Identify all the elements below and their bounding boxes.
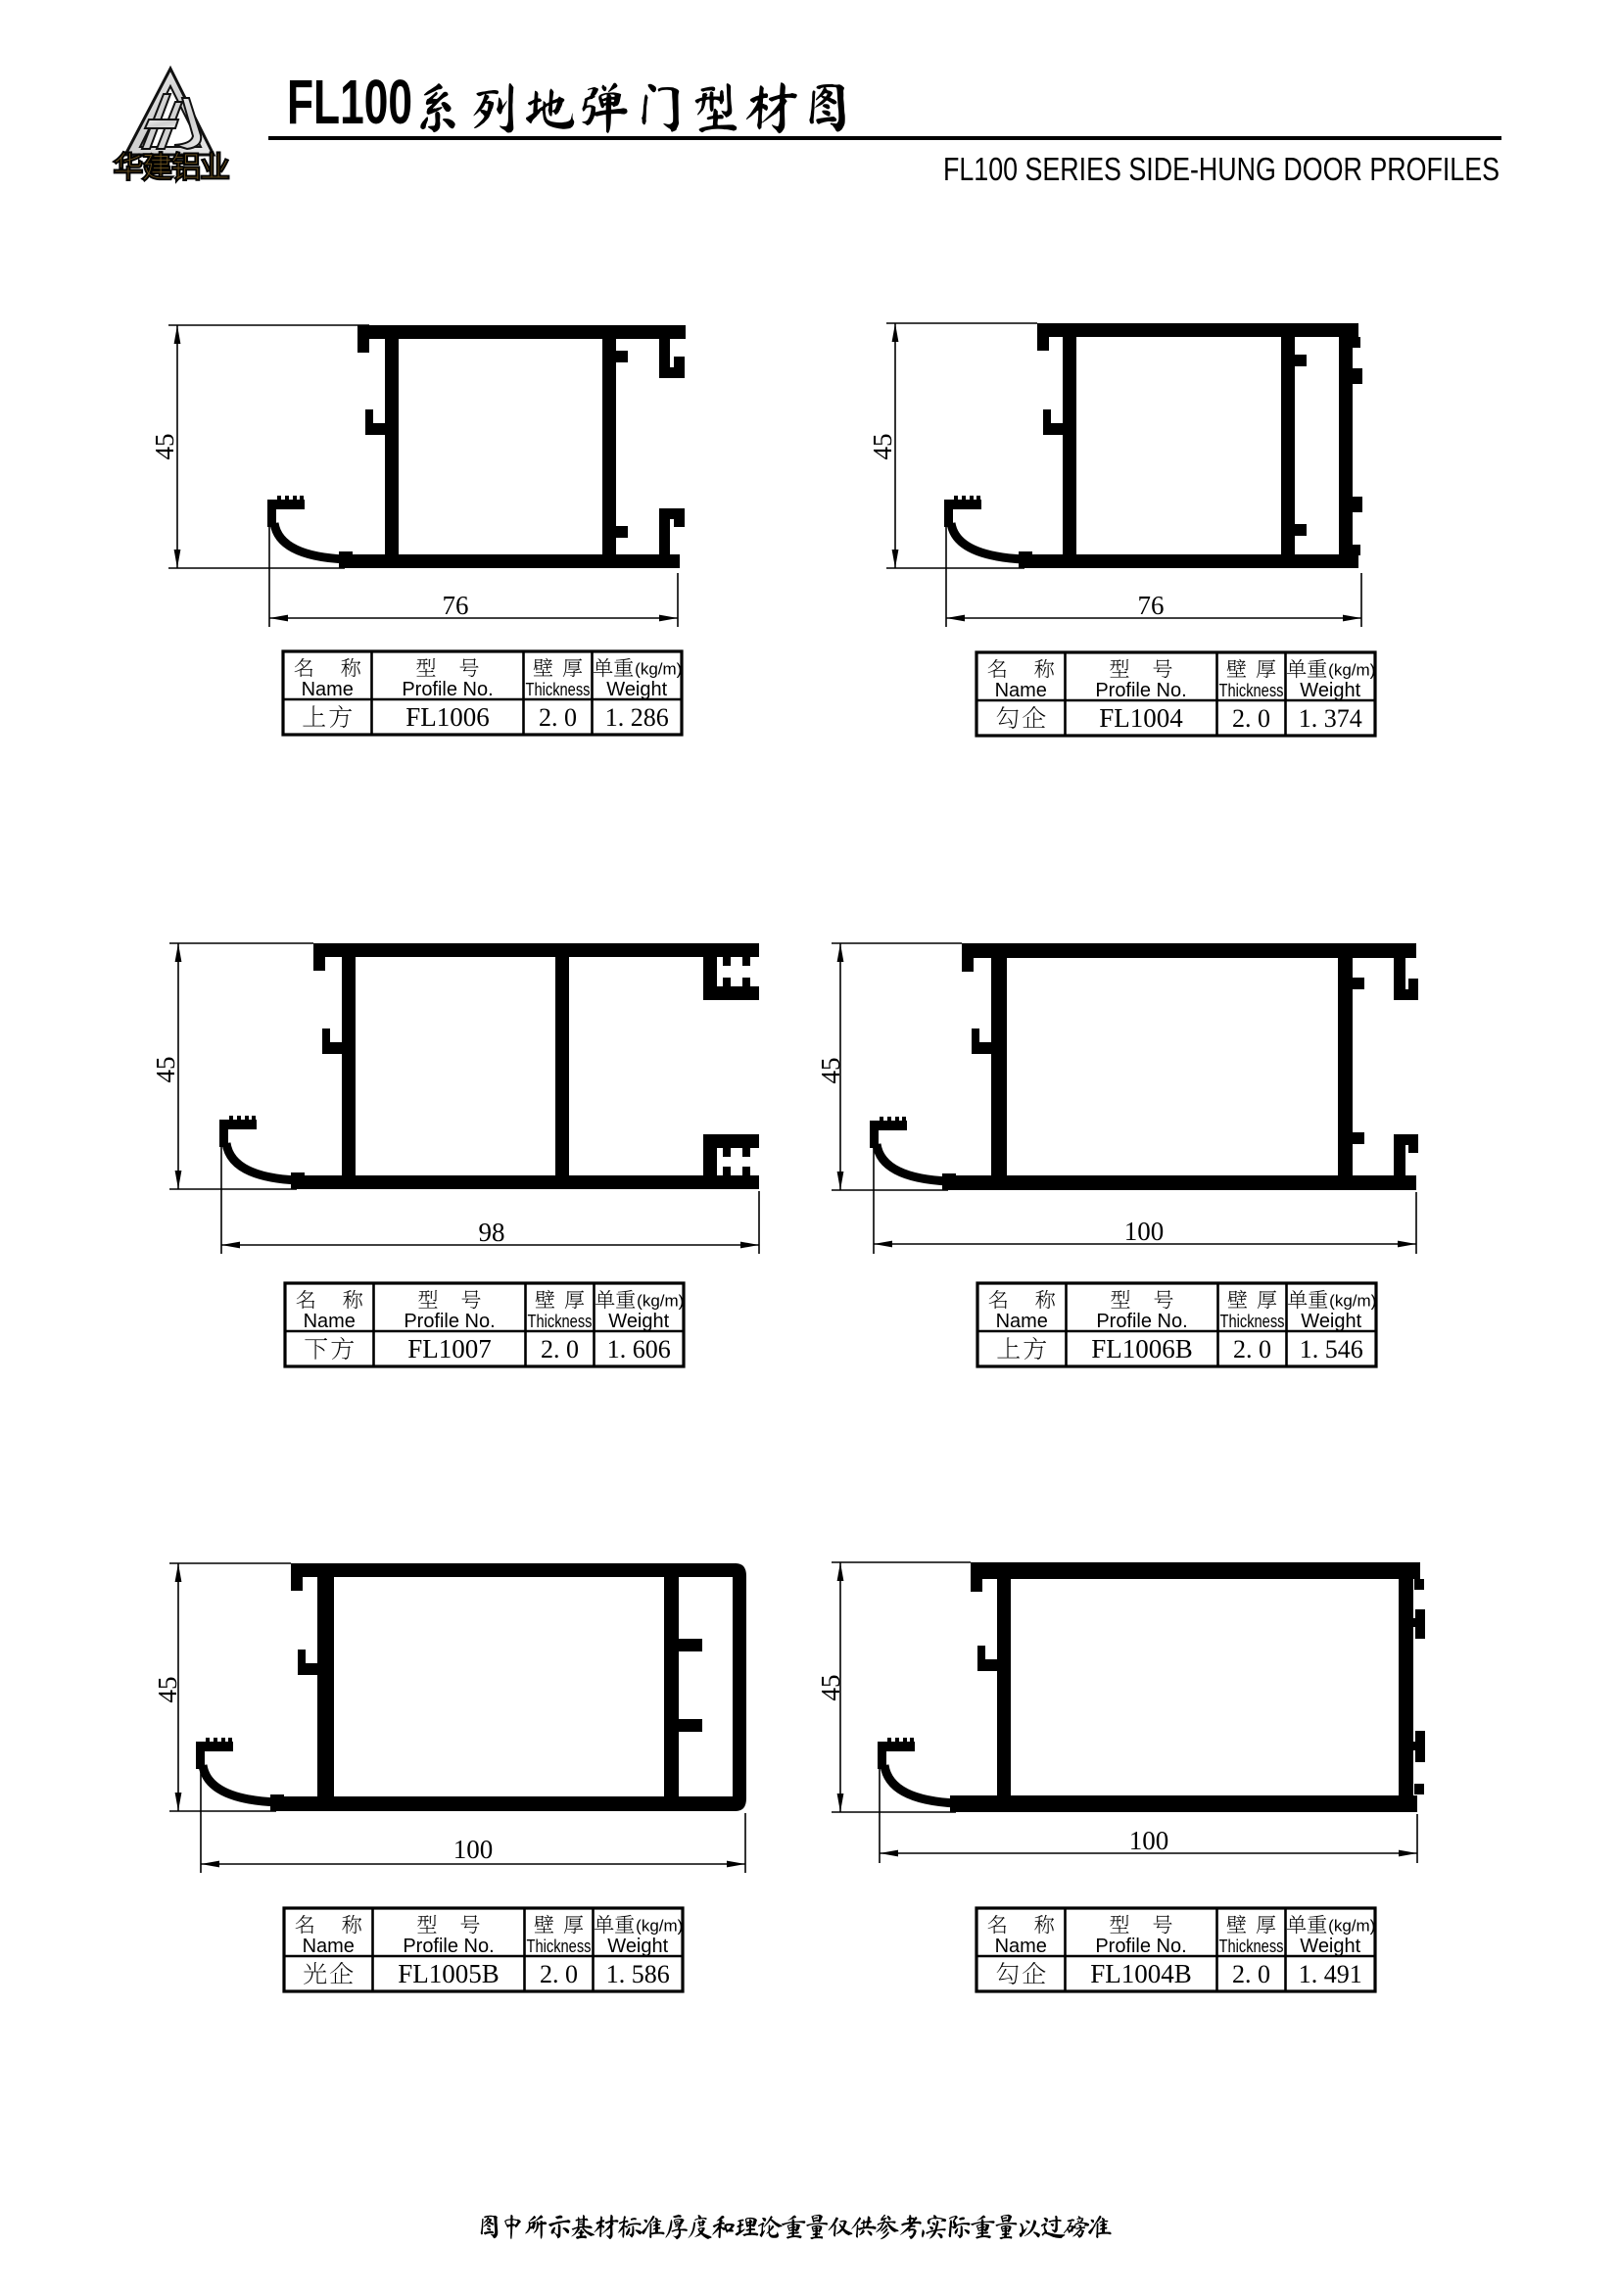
svg-text:FL1006: FL1006 [405, 702, 490, 732]
svg-text:Thickness: Thickness [526, 680, 591, 699]
svg-text:Thickness: Thickness [1220, 1312, 1285, 1331]
svg-text:45: 45 [153, 1677, 182, 1703]
svg-text:Profile No.: Profile No. [404, 1311, 495, 1332]
svg-text:2. 0: 2. 0 [541, 1335, 579, 1363]
svg-text:1. 374: 1. 374 [1299, 704, 1362, 733]
svg-text:Weight: Weight [607, 1936, 668, 1957]
svg-text:45: 45 [868, 434, 897, 460]
svg-text:2. 0: 2. 0 [539, 703, 577, 732]
svg-text:1. 491: 1. 491 [1299, 1960, 1362, 1988]
svg-text:FL100 SERIES SIDE-HUNG DOOR PR: FL100 SERIES SIDE-HUNG DOOR PROFILES [943, 151, 1500, 187]
svg-text:Thickness: Thickness [528, 1312, 593, 1331]
svg-text:(kg/m): (kg/m) [637, 1292, 684, 1311]
svg-text:(kg/m): (kg/m) [635, 660, 682, 679]
svg-text:FL1006B: FL1006B [1091, 1334, 1193, 1363]
svg-text:76: 76 [443, 591, 469, 620]
svg-text:45: 45 [151, 1057, 180, 1083]
svg-text:1. 546: 1. 546 [1300, 1335, 1363, 1363]
svg-text:Name: Name [304, 1311, 356, 1332]
svg-text:100: 100 [1129, 1826, 1169, 1855]
svg-text:45: 45 [816, 1058, 845, 1084]
svg-text:(kg/m): (kg/m) [636, 1917, 683, 1936]
svg-text:Thickness: Thickness [527, 1937, 592, 1956]
svg-text:100: 100 [1124, 1217, 1165, 1246]
svg-text:2. 0: 2. 0 [540, 1960, 578, 1988]
svg-text:1. 586: 1. 586 [606, 1960, 670, 1988]
svg-text:FL1005B: FL1005B [398, 1959, 500, 1988]
svg-text:FL100: FL100 [287, 67, 412, 137]
svg-text:2. 0: 2. 0 [1232, 1960, 1270, 1988]
svg-text:2. 0: 2. 0 [1233, 1335, 1271, 1363]
svg-text:1. 606: 1. 606 [607, 1335, 671, 1363]
svg-text:Thickness: Thickness [1219, 681, 1284, 700]
svg-text:98: 98 [479, 1218, 505, 1247]
svg-text:Name: Name [302, 679, 354, 700]
svg-text:Profile No.: Profile No. [1096, 1311, 1187, 1332]
svg-text:1. 286: 1. 286 [605, 703, 669, 732]
svg-text:Name: Name [995, 680, 1047, 701]
svg-text:Weight: Weight [1300, 1936, 1360, 1957]
svg-text:Weight: Weight [606, 679, 667, 700]
svg-text:45: 45 [150, 434, 179, 460]
svg-text:Weight: Weight [1301, 1311, 1361, 1332]
svg-text:Weight: Weight [1300, 680, 1360, 701]
svg-text:(kg/m): (kg/m) [1328, 1917, 1375, 1936]
svg-text:Name: Name [996, 1311, 1048, 1332]
svg-text:Profile No.: Profile No. [1095, 680, 1186, 701]
svg-text:76: 76 [1138, 591, 1165, 620]
svg-text:Weight: Weight [608, 1311, 669, 1332]
svg-text:FL1004: FL1004 [1099, 703, 1183, 733]
svg-text:Name: Name [995, 1936, 1047, 1957]
svg-text:Profile No.: Profile No. [1095, 1936, 1186, 1957]
svg-text:Thickness: Thickness [1219, 1937, 1284, 1956]
svg-text:Profile No.: Profile No. [402, 679, 493, 700]
svg-text:45: 45 [816, 1675, 845, 1701]
svg-text:Profile No.: Profile No. [403, 1936, 494, 1957]
svg-text:Name: Name [303, 1936, 355, 1957]
svg-text:(kg/m): (kg/m) [1329, 1292, 1376, 1311]
svg-text:FL1004B: FL1004B [1090, 1959, 1192, 1988]
svg-text:FL1007: FL1007 [407, 1334, 492, 1363]
svg-text:2. 0: 2. 0 [1232, 704, 1270, 733]
svg-text:(kg/m): (kg/m) [1328, 661, 1375, 680]
svg-text:100: 100 [453, 1835, 494, 1864]
